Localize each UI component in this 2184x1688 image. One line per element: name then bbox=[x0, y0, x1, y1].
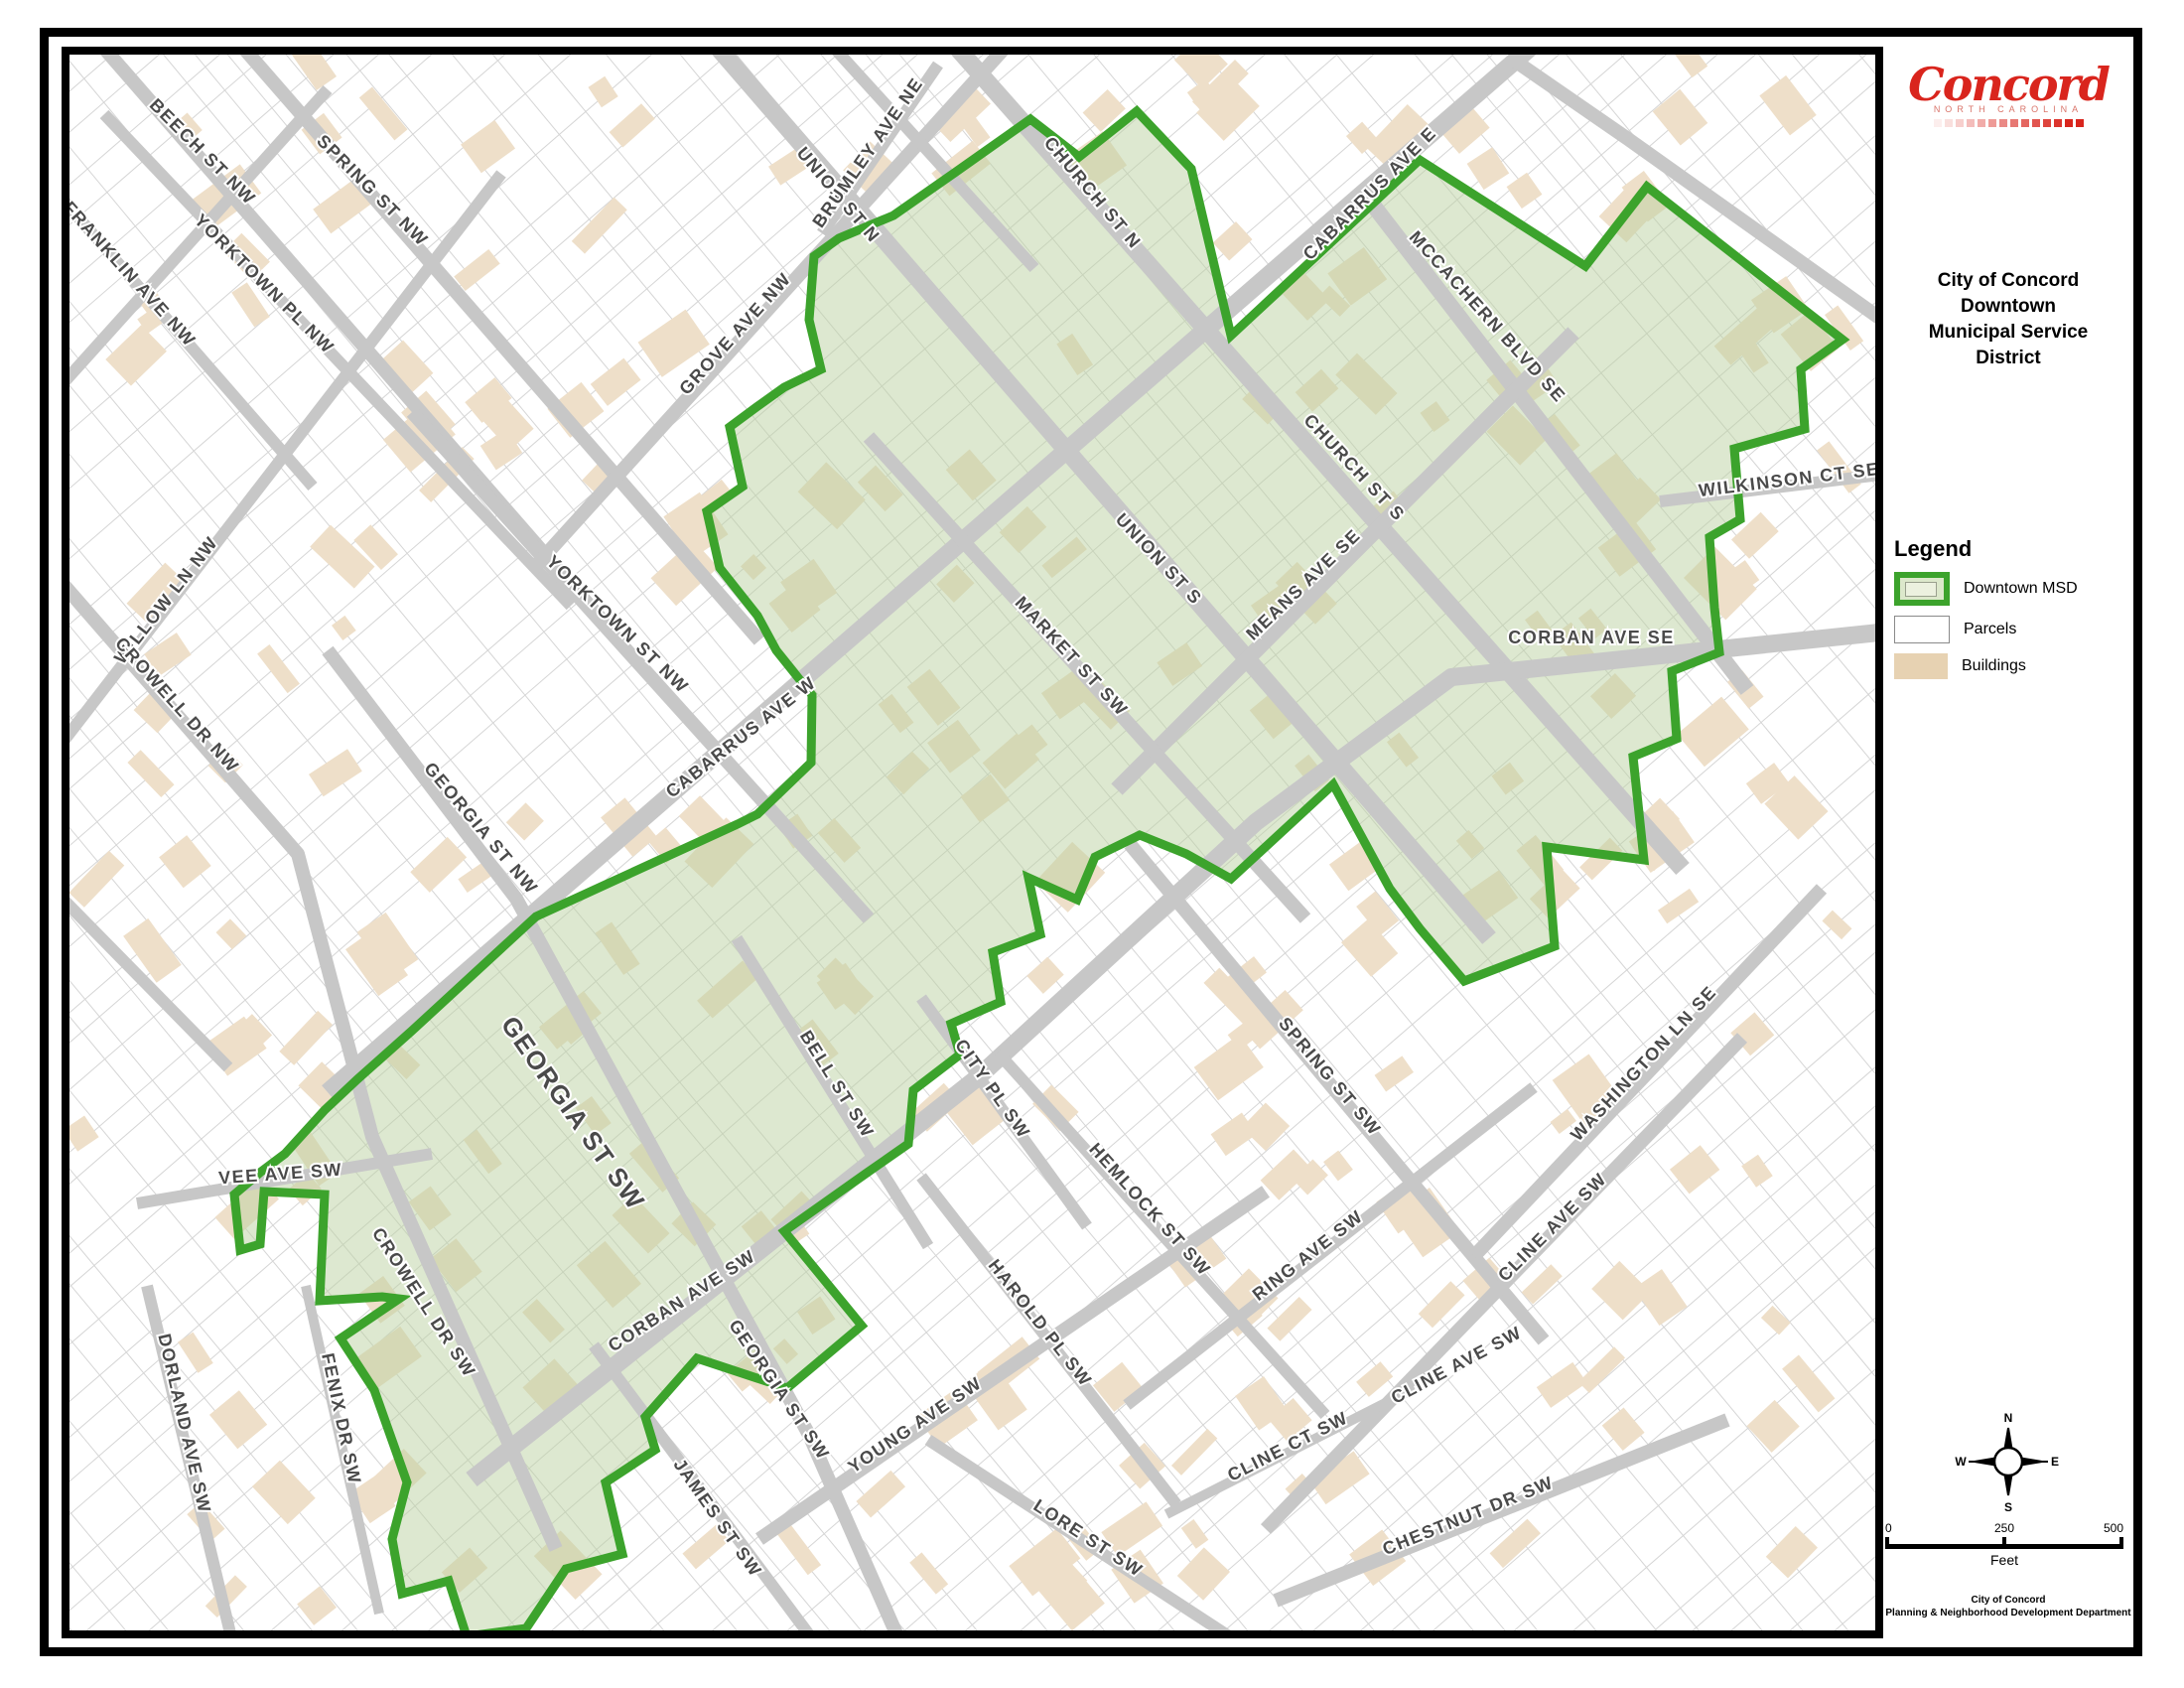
msd-swatch-icon bbox=[1894, 572, 1950, 606]
compass-rose-icon: N E S W bbox=[1944, 1397, 2073, 1526]
scale-tick-label: 0 bbox=[1885, 1521, 1892, 1535]
compass-w: W bbox=[1955, 1455, 1967, 1469]
map-title-line: City of Concord bbox=[1883, 268, 2133, 294]
street-label: CORBAN AVE SE bbox=[1508, 628, 1675, 647]
building-swatch-icon bbox=[1894, 653, 1948, 679]
map-canvas: BEECH ST NWSPRING ST NWFRANKLIN AVE NWYO… bbox=[62, 47, 1883, 1638]
map-title-line: District bbox=[1883, 346, 2133, 371]
legend: Legend Downtown MSD Parcels Buildings bbox=[1894, 536, 2132, 679]
scale-bar-line bbox=[1885, 1537, 2123, 1549]
concord-logo: Concord NORTH CAROLINA bbox=[1883, 65, 2133, 127]
map-drawing: BEECH ST NWSPRING ST NWFRANKLIN AVE NWYO… bbox=[69, 55, 1875, 1630]
page: { "panel": { "logo": {"name": "Concord",… bbox=[0, 0, 2184, 1688]
credits: City of Concord Planning & Neighborhood … bbox=[1883, 1594, 2133, 1619]
map-title-line: Downtown bbox=[1883, 294, 2133, 320]
scale-bar: 0 250 500 Feet bbox=[1885, 1521, 2123, 1568]
legend-item-downtown-msd: Downtown MSD bbox=[1894, 572, 2132, 606]
credits-line: City of Concord bbox=[1883, 1594, 2133, 1607]
legend-item-label: Buildings bbox=[1962, 657, 2026, 675]
logo-fade-strip bbox=[1883, 119, 2133, 127]
legend-item-parcels: Parcels bbox=[1894, 616, 2132, 643]
map-title: City of Concord Downtown Municipal Servi… bbox=[1883, 268, 2133, 371]
legend-heading: Legend bbox=[1894, 536, 2132, 562]
scale-tick-label: 500 bbox=[2104, 1521, 2123, 1535]
parcel-swatch-icon bbox=[1894, 616, 1950, 643]
scale-tick-label: 250 bbox=[1994, 1521, 2014, 1535]
legend-item-label: Downtown MSD bbox=[1964, 580, 2078, 598]
logo-wordmark: Concord bbox=[1883, 65, 2133, 104]
legend-item-label: Parcels bbox=[1964, 621, 2016, 638]
scale-bar-unit: Feet bbox=[1885, 1552, 2123, 1568]
compass-s: S bbox=[2004, 1500, 2012, 1514]
compass-e: E bbox=[2051, 1455, 2059, 1469]
legend-item-buildings: Buildings bbox=[1894, 653, 2132, 679]
credits-line: Planning & Neighborhood Development Depa… bbox=[1883, 1607, 2133, 1619]
scale-bar-ticks: 0 250 500 bbox=[1885, 1521, 2123, 1535]
map-title-line: Municipal Service bbox=[1883, 320, 2133, 346]
side-panel: Concord NORTH CAROLINA City of Concord D… bbox=[1883, 37, 2133, 1637]
compass-n: N bbox=[2004, 1411, 2013, 1425]
